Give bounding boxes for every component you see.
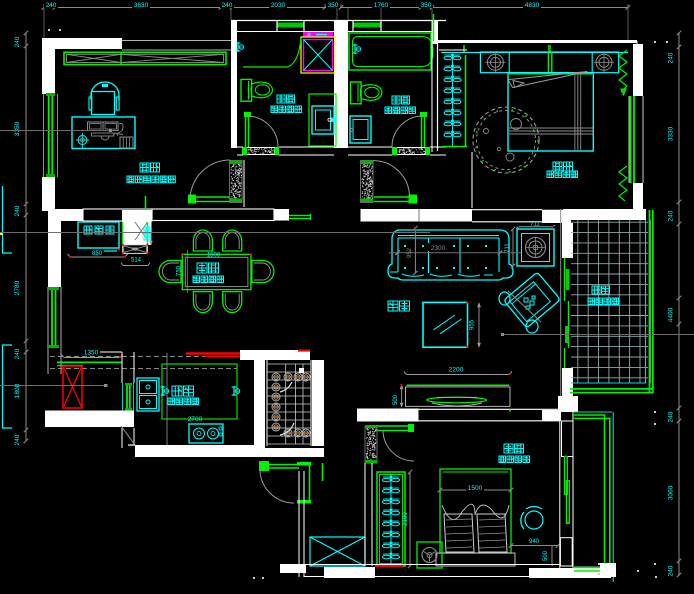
svg-text:3350: 3350 [14, 121, 21, 136]
svg-text:500: 500 [543, 550, 549, 561]
svg-text:240: 240 [222, 2, 233, 9]
svg-text:240: 240 [14, 348, 21, 359]
svg-text:240: 240 [668, 210, 675, 221]
svg-text:1350: 1350 [84, 350, 99, 357]
svg-text:2780: 2780 [14, 280, 21, 295]
svg-text:1760: 1760 [374, 2, 389, 9]
svg-text:240: 240 [668, 411, 675, 422]
svg-text:3630: 3630 [134, 2, 149, 9]
svg-text:350: 350 [328, 2, 339, 9]
svg-text:850: 850 [92, 251, 103, 257]
svg-text:2030: 2030 [271, 2, 286, 9]
svg-text:514: 514 [131, 258, 142, 264]
svg-text:711: 711 [505, 243, 511, 253]
svg-text:750: 750 [177, 265, 183, 276]
svg-text:240: 240 [14, 434, 21, 445]
svg-text:1500: 1500 [207, 252, 221, 258]
svg-text:240: 240 [668, 565, 675, 576]
svg-text:240: 240 [14, 205, 21, 216]
svg-text:940: 940 [529, 539, 540, 545]
svg-text:2200: 2200 [449, 367, 464, 374]
svg-text:4830: 4830 [525, 2, 540, 9]
svg-text:240: 240 [668, 52, 675, 63]
svg-text:3060: 3060 [668, 485, 675, 500]
svg-text:1500: 1500 [468, 485, 483, 492]
svg-text:240: 240 [46, 2, 57, 9]
svg-text:4400: 4400 [668, 307, 675, 322]
svg-text:3330: 3330 [668, 126, 675, 141]
svg-text:350: 350 [421, 2, 432, 9]
svg-text:240: 240 [14, 36, 21, 47]
svg-text:2100: 2100 [403, 512, 409, 526]
svg-text:711: 711 [530, 222, 540, 228]
svg-text:500: 500 [393, 394, 399, 405]
svg-text:955: 955 [470, 319, 476, 330]
svg-text:2300: 2300 [431, 245, 446, 252]
svg-text:2700: 2700 [188, 416, 203, 423]
